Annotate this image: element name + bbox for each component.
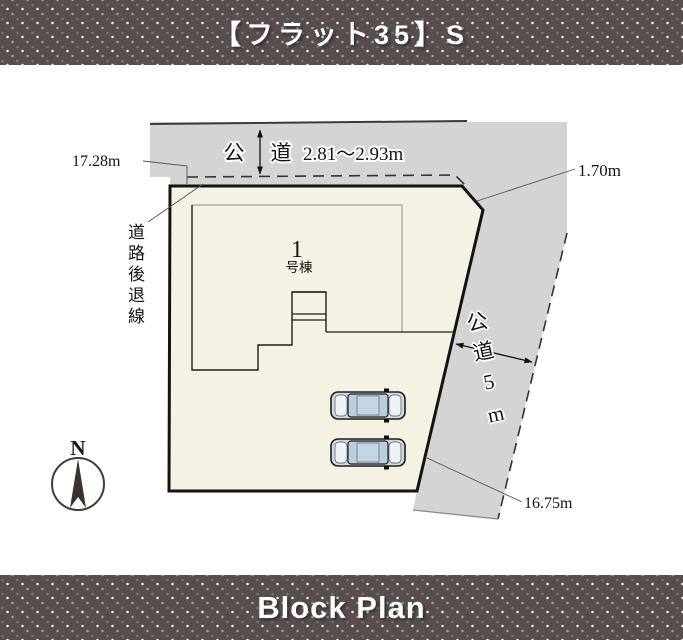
footer-banner: Block Plan	[0, 575, 683, 640]
car-top	[331, 389, 405, 423]
top-road-kanji-left: 公	[224, 141, 245, 165]
setback-label: 道路後退線	[122, 223, 147, 328]
block-plan-drawing: 1 号棟 公 道 2.81～2.93m 17.28m 1.70m 16.75m …	[0, 0, 683, 640]
compass: N	[52, 436, 104, 510]
top-road-kanji-right: 道	[271, 141, 292, 165]
car-bottom	[331, 436, 405, 470]
dim-left-label: 17.28m	[72, 153, 121, 170]
dim-bottom-label: 16.75m	[524, 495, 573, 512]
header-banner: 【フラット35】S	[0, 0, 683, 65]
building-number-suffix: 号棟	[286, 260, 313, 275]
footer-title: Block Plan	[257, 590, 426, 626]
compass-north-label: N	[70, 436, 85, 460]
header-title: 【フラット35】S	[214, 13, 469, 52]
top-road-width-label: 2.81～2.93m	[303, 144, 404, 165]
block-plan-page: 1 号棟 公 道 2.81～2.93m 17.28m 1.70m 16.75m …	[0, 0, 683, 640]
north-needle-icon	[70, 459, 86, 508]
dim-corner-label: 1.70m	[578, 161, 621, 180]
